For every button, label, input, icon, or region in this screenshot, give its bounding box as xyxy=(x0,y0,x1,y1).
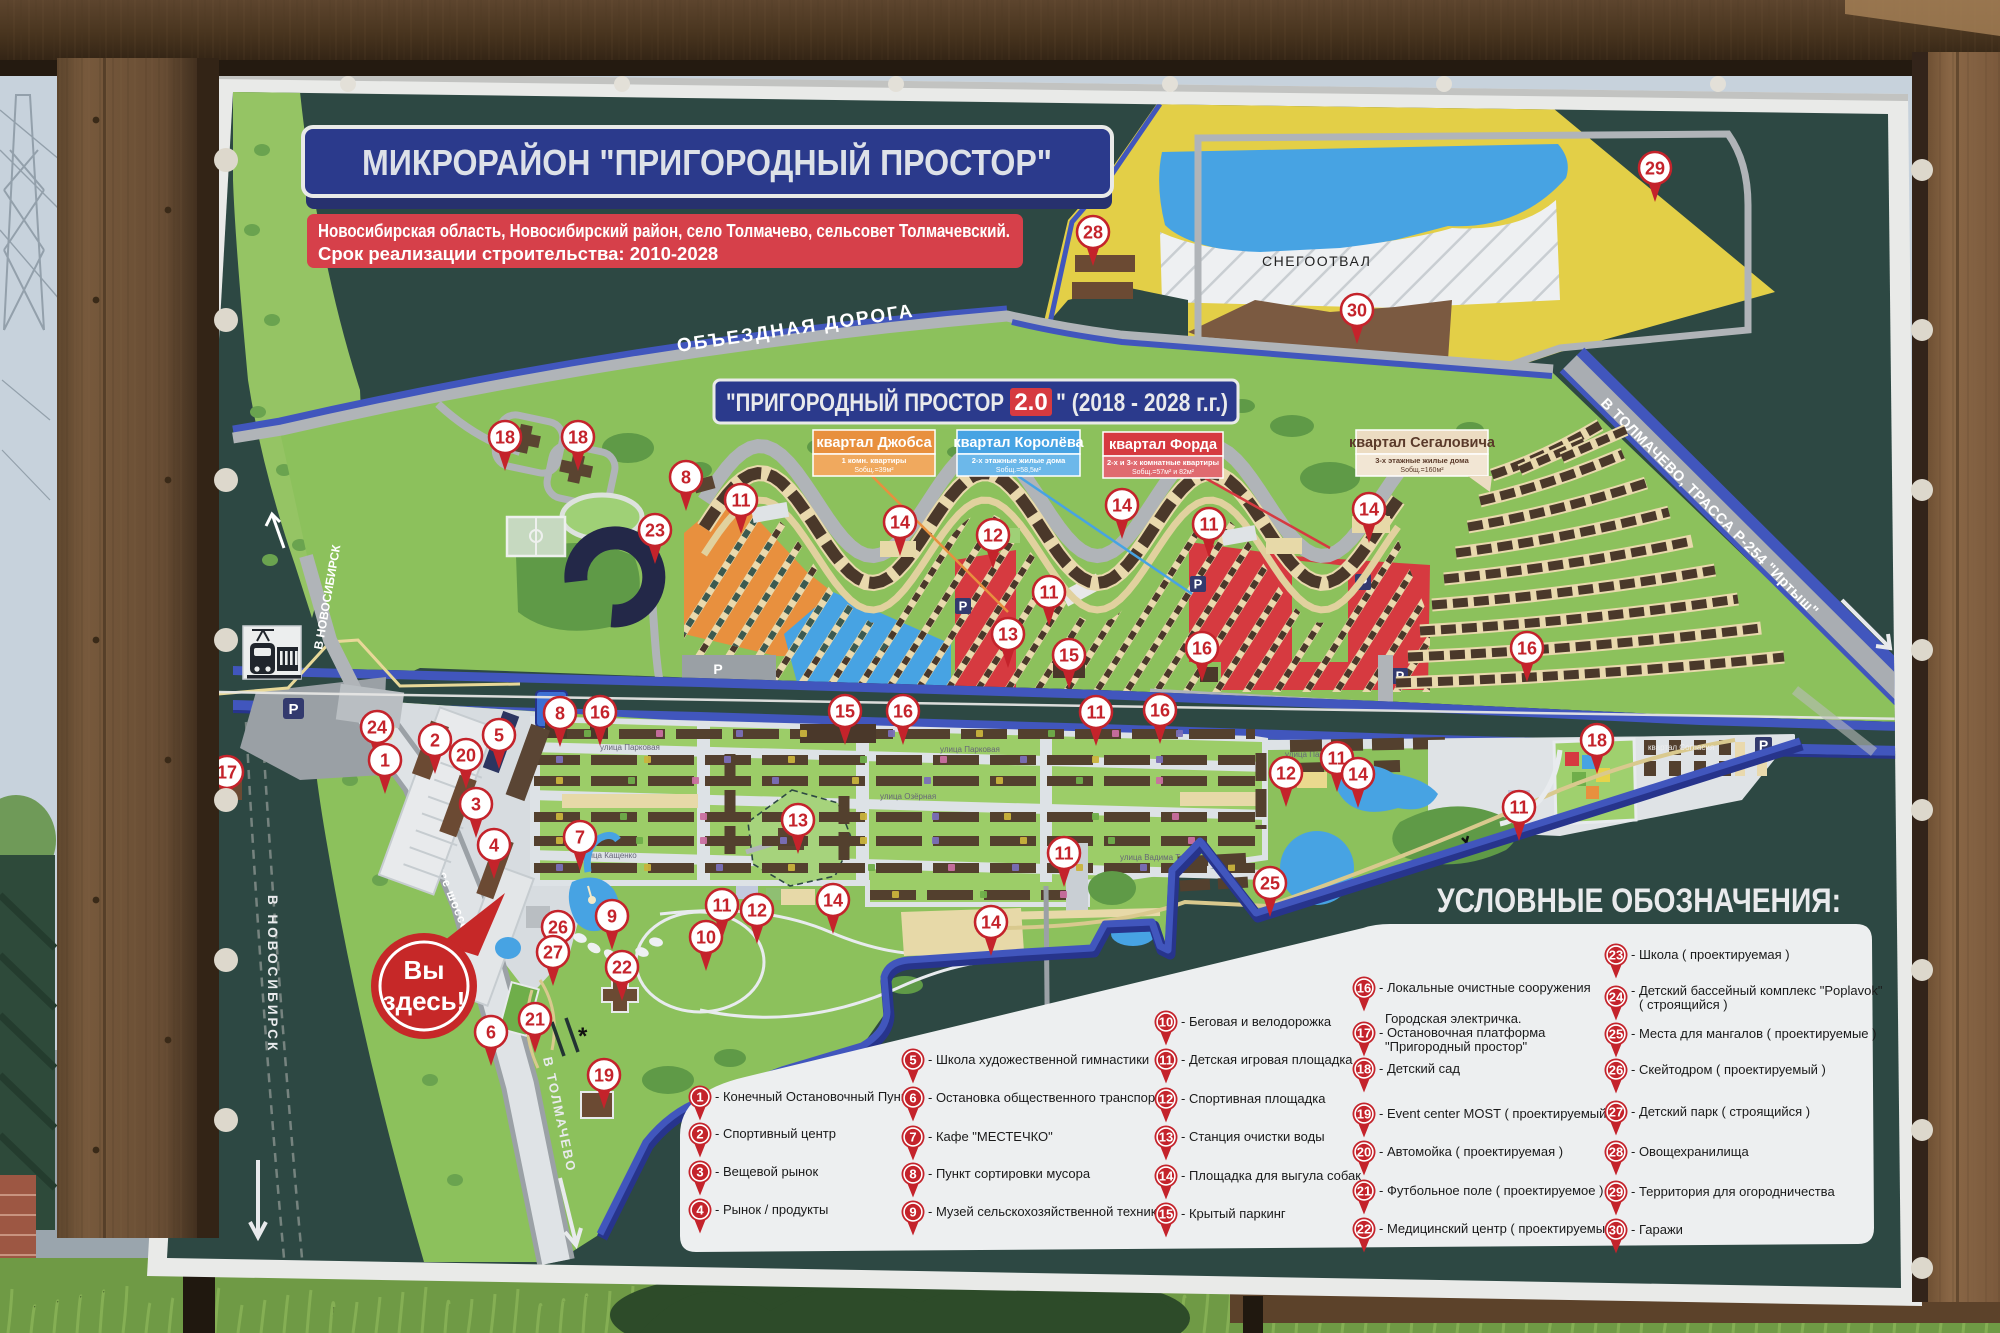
svg-text:11: 11 xyxy=(1086,702,1105,722)
svg-text:18: 18 xyxy=(1357,1062,1371,1077)
svg-text:Sобщ.=160м²: Sобщ.=160м² xyxy=(1400,466,1444,474)
svg-text:30: 30 xyxy=(1609,1223,1623,1238)
svg-text:3: 3 xyxy=(471,794,481,814)
svg-text:26: 26 xyxy=(548,917,568,937)
svg-text:13: 13 xyxy=(998,624,1018,644)
svg-text:26: 26 xyxy=(1609,1063,1623,1078)
svg-text:P: P xyxy=(288,701,298,718)
svg-text:- Музей сельскохозяйственной т: - Музей сельскохозяйственной техники xyxy=(928,1204,1164,1219)
svg-text:29: 29 xyxy=(1609,1185,1623,1200)
svg-text:15: 15 xyxy=(1159,1207,1173,1222)
svg-text:19: 19 xyxy=(1357,1107,1371,1122)
svg-text:Sобщ.=58,5м²: Sобщ.=58,5м² xyxy=(996,466,1042,474)
svg-text:- Станция очистки воды: - Станция очистки воды xyxy=(1181,1129,1325,1144)
svg-text:- Детская игровая площадка: - Детская игровая площадка xyxy=(1181,1052,1353,1067)
svg-text:2-х этажные жилые дома: 2-х этажные жилые дома xyxy=(972,456,1066,465)
svg-text:11: 11 xyxy=(1054,843,1073,863)
svg-text:- Скейтодром ( проектируемый ): - Скейтодром ( проектируемый ) xyxy=(1631,1062,1826,1077)
svg-text:2.0: 2.0 xyxy=(1014,389,1047,416)
svg-text:2: 2 xyxy=(430,730,440,750)
svg-text:1: 1 xyxy=(380,750,390,770)
svg-text:- Школа ( проектируемая ): - Школа ( проектируемая ) xyxy=(1631,947,1790,962)
svg-text:11: 11 xyxy=(1199,514,1218,534)
svg-text:Новосибирская область, Новосиб: Новосибирская область, Новосибирский рай… xyxy=(318,220,1010,241)
svg-text:улица Парковая: улица Парковая xyxy=(600,743,660,752)
svg-text:- Локальные очистные сооружени: - Локальные очистные сооружения xyxy=(1379,980,1591,995)
svg-text:- Рынок / продукты: - Рынок / продукты xyxy=(715,1202,828,1217)
svg-text:16: 16 xyxy=(590,702,610,722)
svg-text:- Вещевой рынок: - Вещевой рынок xyxy=(715,1164,818,1179)
svg-text:СНЕГООТВАЛ: СНЕГООТВАЛ xyxy=(1262,253,1371,269)
svg-text:29: 29 xyxy=(1645,158,1665,178)
svg-text:21: 21 xyxy=(525,1009,545,1029)
svg-text:15: 15 xyxy=(1059,645,1079,665)
svg-text:16: 16 xyxy=(893,701,913,721)
svg-text:улица Озёрная: улица Озёрная xyxy=(880,792,936,801)
svg-text:12: 12 xyxy=(1276,763,1296,783)
svg-text:21: 21 xyxy=(1357,1184,1371,1199)
svg-text:- Территория для огородничеств: - Территория для огородничества xyxy=(1631,1184,1835,1199)
svg-text:16: 16 xyxy=(1517,638,1537,658)
svg-text:13: 13 xyxy=(788,810,808,830)
svg-text:- Остановка общественного тран: - Остановка общественного транспорта xyxy=(928,1090,1169,1105)
svg-text:3: 3 xyxy=(696,1165,703,1180)
svg-text:- Футбольное поле ( проектируе: - Футбольное поле ( проектируемое ) xyxy=(1379,1183,1603,1198)
svg-text:8: 8 xyxy=(909,1167,916,1182)
svg-text:16: 16 xyxy=(1192,638,1212,658)
svg-text:- Спортивная площадка: - Спортивная площадка xyxy=(1181,1091,1326,1106)
svg-text:14: 14 xyxy=(1359,499,1379,519)
svg-text:25: 25 xyxy=(1260,873,1280,893)
svg-text:1: 1 xyxy=(696,1090,703,1105)
svg-text:17: 17 xyxy=(1357,1026,1371,1041)
svg-text:1 комн. квартиры: 1 комн. квартиры xyxy=(842,456,907,465)
svg-text:7: 7 xyxy=(909,1130,916,1145)
svg-text:- Школа художественной гимнаст: - Школа художественной гимнастики xyxy=(928,1052,1149,1067)
svg-text:*: * xyxy=(578,1023,588,1050)
svg-text:квартал Сегаловича: квартал Сегаловича xyxy=(1349,435,1496,451)
svg-text:2-х и 3-х комнатные квартиры: 2-х и 3-х комнатные квартиры xyxy=(1107,458,1219,467)
svg-text:14: 14 xyxy=(823,890,843,910)
svg-text:УСЛОВНЫЕ ОБОЗНАЧЕНИЯ:: УСЛОВНЫЕ ОБОЗНАЧЕНИЯ: xyxy=(1437,882,1841,920)
svg-text:Срок реализации строительства:: Срок реализации строительства: 2010-2028 xyxy=(318,243,718,264)
svg-text:"ПРИГОРОДНЫЙ ПРОСТОР: "ПРИГОРОДНЫЙ ПРОСТОР xyxy=(726,387,1004,417)
svg-text:квартал Форда: квартал Форда xyxy=(1109,437,1218,453)
svg-text:- Площадка для выгула собак: - Площадка для выгула собак xyxy=(1181,1168,1361,1183)
svg-text:квартал Согласия: квартал Согласия xyxy=(1648,743,1714,752)
svg-text:16: 16 xyxy=(1150,700,1170,720)
svg-text:11: 11 xyxy=(712,895,731,915)
svg-text:квартал Королёва: квартал Королёва xyxy=(953,435,1084,451)
svg-text:- Детский сад: - Детский сад xyxy=(1379,1061,1460,1076)
svg-text:- Детский парк ( строящийся ): - Детский парк ( строящийся ) xyxy=(1631,1104,1810,1119)
svg-text:20: 20 xyxy=(456,745,476,765)
svg-text:18: 18 xyxy=(495,427,515,447)
svg-text:Sобщ.=57м² и 82м²: Sобщ.=57м² и 82м² xyxy=(1132,468,1195,476)
svg-text:6: 6 xyxy=(909,1091,916,1106)
svg-text:"Пригородный простор": "Пригородный простор" xyxy=(1385,1039,1528,1054)
svg-text:8: 8 xyxy=(555,703,565,723)
svg-text:- Крытый паркинг: - Крытый паркинг xyxy=(1181,1206,1286,1221)
svg-text:( строящийся ): ( строящийся ) xyxy=(1639,997,1728,1012)
svg-text:квартал Джобса: квартал Джобса xyxy=(816,435,932,451)
svg-text:5: 5 xyxy=(909,1053,916,1068)
svg-text:" (2018 - 2028 г.г.): " (2018 - 2028 г.г.) xyxy=(1056,389,1228,417)
svg-text:28: 28 xyxy=(1083,222,1103,242)
svg-text:14: 14 xyxy=(1348,764,1368,784)
svg-text:24: 24 xyxy=(367,717,387,737)
svg-text:- Овощехранилища: - Овощехранилища xyxy=(1631,1144,1749,1159)
svg-text:28: 28 xyxy=(1609,1145,1623,1160)
svg-text:Sобщ.=39м²: Sобщ.=39м² xyxy=(854,466,894,474)
svg-text:12: 12 xyxy=(747,900,767,920)
svg-text:МИКРОРАЙОН "ПРИГОРОДНЫЙ ПРОСТО: МИКРОРАЙОН "ПРИГОРОДНЫЙ ПРОСТОР" xyxy=(362,141,1052,183)
svg-text:5: 5 xyxy=(494,725,504,745)
svg-text:11: 11 xyxy=(1039,582,1058,602)
svg-text:- Остановочная платформа: - Остановочная платформа xyxy=(1379,1025,1546,1040)
svg-text:12: 12 xyxy=(1159,1092,1173,1107)
svg-text:P: P xyxy=(713,661,722,677)
svg-text:- Детский бассейный комплекс ": - Детский бассейный комплекс "Poplavok" xyxy=(1631,983,1883,998)
svg-text:23: 23 xyxy=(645,520,665,540)
svg-text:27: 27 xyxy=(1609,1105,1623,1120)
svg-text:11: 11 xyxy=(1509,797,1528,817)
svg-text:2: 2 xyxy=(696,1127,703,1142)
svg-text:27: 27 xyxy=(543,942,563,962)
svg-text:25: 25 xyxy=(1609,1027,1623,1042)
svg-text:P: P xyxy=(1194,577,1203,592)
svg-text:улица Парковая: улица Парковая xyxy=(940,745,1000,754)
svg-text:В НОВОСИБИРСК: В НОВОСИБИРСК xyxy=(265,895,280,1053)
svg-text:14: 14 xyxy=(1159,1169,1174,1184)
svg-text:11: 11 xyxy=(731,490,750,510)
svg-text:14: 14 xyxy=(981,912,1001,932)
svg-text:7: 7 xyxy=(575,827,585,847)
svg-text:3-х этажные жилые дома: 3-х этажные жилые дома xyxy=(1375,456,1469,465)
svg-text:- Беговая и велодорожка: - Беговая и велодорожка xyxy=(1181,1014,1332,1029)
svg-text:- Места для мангалов ( проекти: - Места для мангалов ( проектируемые ) xyxy=(1631,1026,1876,1041)
svg-text:здесь!: здесь! xyxy=(383,986,466,1016)
svg-text:14: 14 xyxy=(1112,495,1132,515)
svg-text:23: 23 xyxy=(1609,948,1623,963)
svg-text:4: 4 xyxy=(696,1203,704,1218)
svg-text:14: 14 xyxy=(890,512,910,532)
svg-text:9: 9 xyxy=(909,1205,916,1220)
svg-text:22: 22 xyxy=(612,957,632,977)
svg-text:22: 22 xyxy=(1357,1222,1371,1237)
svg-text:- Медицинский центр ( проектир: - Медицинский центр ( проектируемый ) xyxy=(1379,1221,1620,1236)
svg-text:24: 24 xyxy=(1609,990,1624,1005)
svg-text:- Event center MOST ( проектир: - Event center MOST ( проектируемый ) xyxy=(1379,1106,1614,1121)
svg-text:30: 30 xyxy=(1347,300,1367,320)
svg-text:- Конечный Остановочный Пункт: - Конечный Остановочный Пункт xyxy=(715,1089,913,1104)
svg-text:Вы: Вы xyxy=(404,955,445,985)
svg-text:- Спортивный центр: - Спортивный центр xyxy=(715,1126,836,1141)
svg-text:Городская электричка.: Городская электричка. xyxy=(1385,1011,1522,1026)
svg-text:19: 19 xyxy=(594,1065,614,1085)
svg-text:P: P xyxy=(959,599,968,614)
svg-text:8: 8 xyxy=(681,467,691,487)
svg-text:4: 4 xyxy=(489,835,499,855)
svg-text:9: 9 xyxy=(607,906,617,926)
svg-text:13: 13 xyxy=(1159,1130,1173,1145)
svg-text:10: 10 xyxy=(696,927,716,947)
svg-text:18: 18 xyxy=(568,427,588,447)
svg-text:15: 15 xyxy=(835,701,855,721)
svg-text:12: 12 xyxy=(983,525,1003,545)
svg-text:16: 16 xyxy=(1357,981,1371,996)
svg-text:6: 6 xyxy=(486,1022,496,1042)
svg-text:- Автомойка ( проектируемая ): - Автомойка ( проектируемая ) xyxy=(1379,1144,1563,1159)
svg-text:- Пункт сортировки мусора: - Пункт сортировки мусора xyxy=(928,1166,1091,1181)
svg-text:- Гаражи: - Гаражи xyxy=(1631,1222,1683,1237)
svg-text:17: 17 xyxy=(217,762,237,782)
svg-text:20: 20 xyxy=(1357,1145,1371,1160)
svg-text:11: 11 xyxy=(1159,1053,1173,1068)
svg-text:- Кафе "МЕСТЕЧКО": - Кафе "МЕСТЕЧКО" xyxy=(928,1129,1053,1144)
svg-text:10: 10 xyxy=(1159,1015,1173,1030)
svg-text:18: 18 xyxy=(1587,730,1607,750)
